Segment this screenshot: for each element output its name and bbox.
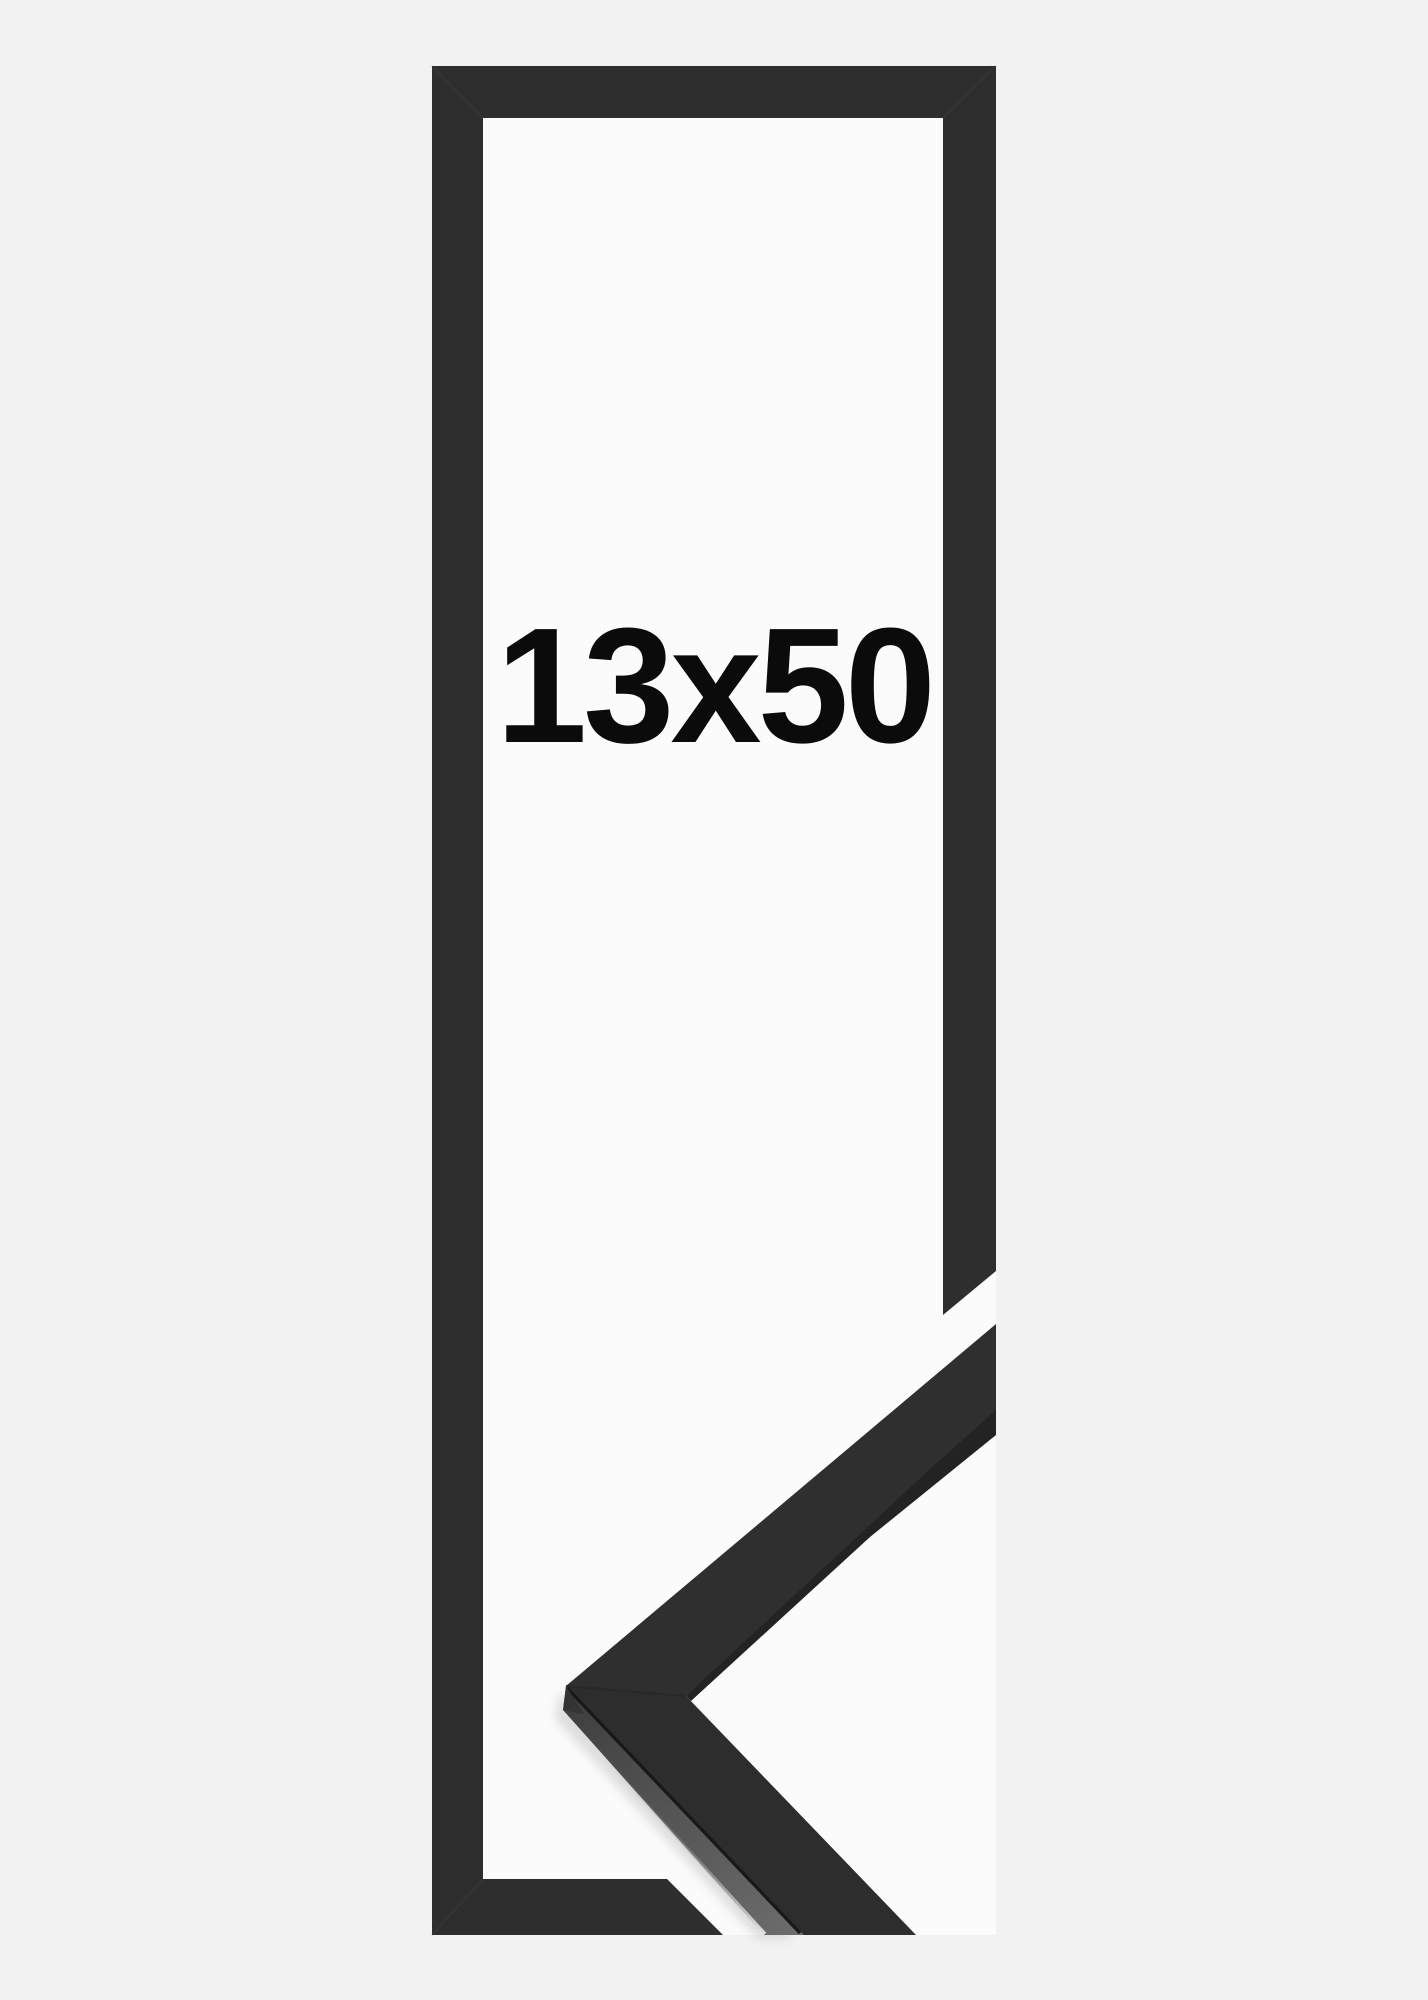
svg-text:13x50: 13x50 — [496, 594, 932, 777]
